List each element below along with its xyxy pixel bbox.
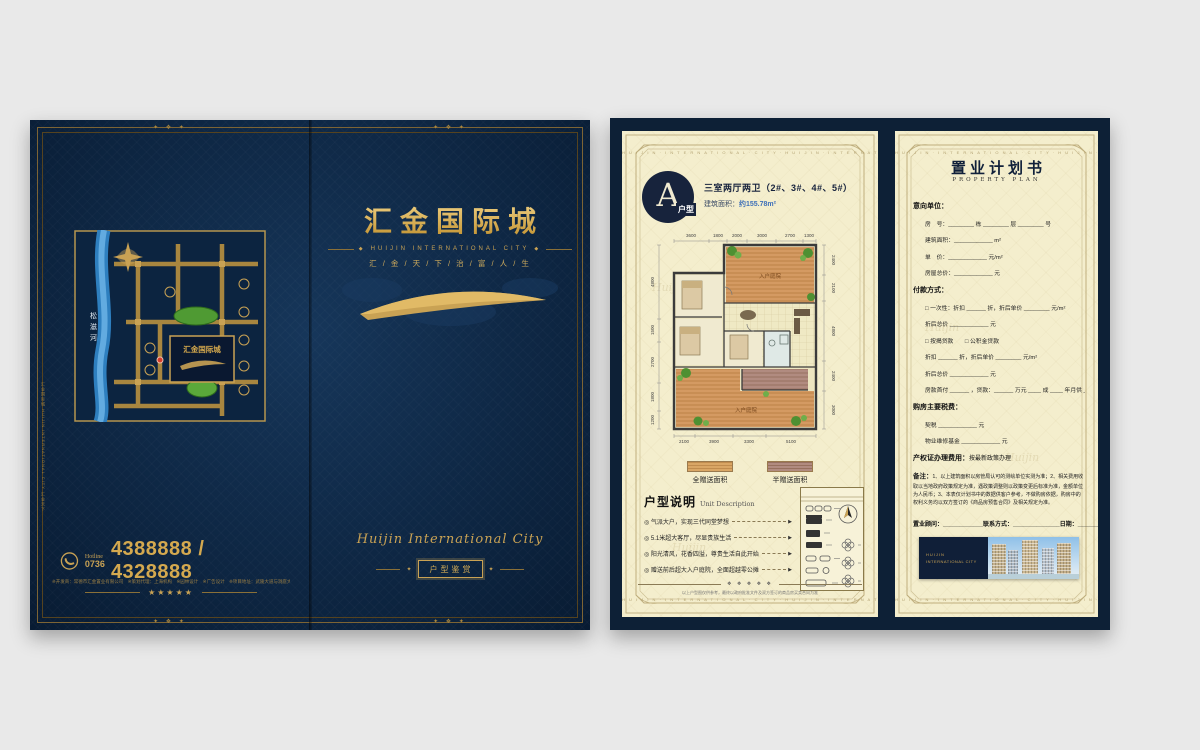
half-gift-swatch xyxy=(767,461,813,472)
border-letters: H U I J I N · I N T E R N A T I O N A L … xyxy=(622,150,878,155)
unit-description: 户型说明Unit Description ◎ 气派大户，实现三代同堂梦想 ▶ ◎… xyxy=(644,493,792,574)
legend-icons-solid xyxy=(806,515,822,548)
cover-spread: ✦ ❖ ✦ ✦ ❖ ✦ ✦ ❖ ✦ ✦ ❖ ✦ 松 滋 河 xyxy=(30,120,590,630)
form-line: 房屋总价：____________ 元 xyxy=(925,268,1085,277)
unit-description-title: 户型说明Unit Description xyxy=(644,493,792,510)
form-body: 意向单位： 房 号：________ 栋 ________ 层 ________… xyxy=(913,193,1085,593)
arrow-icon: ▶ xyxy=(788,535,792,541)
full-gift-swatch xyxy=(687,461,733,472)
desc-line: ◎ 赠送前后超大入户庭院，全面超越零公摊 ▶ xyxy=(644,565,792,574)
svg-text:2400: 2400 xyxy=(831,371,836,382)
ornament-icon: ✦ ❖ ✦ xyxy=(110,618,230,625)
unit-area: 建筑面积：约155.78m² xyxy=(704,199,776,209)
advisor-field: 置业顾问：____________ xyxy=(913,519,983,528)
arrow-icon: ▶ xyxy=(788,551,792,557)
svg-text:3900: 3900 xyxy=(709,439,720,444)
sparkle-icon: ✦ xyxy=(489,566,494,573)
hotline-numbers: 4388888 / 4328888 xyxy=(111,538,282,584)
border-letters: H U I J I N · I N T E R N A T I O N A L … xyxy=(622,597,878,602)
ornament-icon: ✦ ❖ ✦ xyxy=(390,618,510,625)
spine-text: 汇金国际城 HUIJIN INTERNATIONAL CITY 汇金天下 xyxy=(40,382,46,542)
section-label-cert: 产权证办理费用：按最新政策办理 xyxy=(913,453,1085,463)
gift-area-legend: 全赠送面积 半赠送面积 xyxy=(622,461,878,485)
desc-line: ◎ 5.1米超大客厅，尽显贵族生活 ▶ xyxy=(644,533,792,542)
svg-text:3300: 3300 xyxy=(744,439,755,444)
floorplan-disclaimer: 以上户型图仅供参考，最终以政府批准文件及双方签订的商品房买卖合同为准 xyxy=(638,590,862,596)
section-label-intent: 意向单位： xyxy=(913,201,1085,211)
unit-gallery-badge: ✦ 户型鉴赏 ✦ xyxy=(322,560,578,578)
svg-text:2100: 2100 xyxy=(831,283,836,294)
cert-value: 按最新政策办理 xyxy=(969,456,1011,462)
form-subtitle: PROPERTY PLAN xyxy=(895,177,1098,183)
border-letters: H U I J I N · I N T E R N A T I O N A L … xyxy=(895,150,1098,155)
brochure-mockup: { "icons": {"diamond": "◆", "arrow": "▶"… xyxy=(0,0,1200,750)
svg-text:5100: 5100 xyxy=(786,439,797,444)
arrow-icon: ▶ xyxy=(788,567,792,573)
courtyard-bottom-label: 入户庭院 xyxy=(735,406,758,414)
form-line: 契税 ____________ 元 xyxy=(925,420,1085,429)
section-label-taxes: 购房主要税费： xyxy=(913,402,1085,412)
floorplan-page: H U I J I N · I N T E R N A T I O N A L … xyxy=(622,131,878,617)
unit-rooms-title: 三室两厅两卫（2#、3#、4#、5#） xyxy=(704,181,869,194)
ornament-icon: ✦ ❖ ✦ xyxy=(110,124,230,131)
interior-spread: H U I J I N · I N T E R N A T I O N A L … xyxy=(610,118,1110,630)
stars-row: ★★★★★ xyxy=(52,588,290,597)
svg-text:1300: 1300 xyxy=(804,233,815,238)
park-area xyxy=(174,307,218,325)
star-icons: ★★★★★ xyxy=(148,588,194,597)
courtyard-top-label: 入户庭院 xyxy=(759,272,782,280)
form-line: 折后总价 ____________ 元 xyxy=(925,369,1085,378)
form-line: 折后总价 ____________ 元 xyxy=(925,319,1085,328)
svg-text:3000: 3000 xyxy=(757,233,768,238)
logo-line2: INTERNATIONAL CITY xyxy=(926,559,988,564)
hotline-area-code: 0736 xyxy=(85,560,105,569)
form-line: 房 号：________ 栋 ________ 层 ________ 号 xyxy=(925,219,1085,228)
project-label: 汇金国际城 xyxy=(183,344,221,354)
svg-text:2700: 2700 xyxy=(785,233,796,238)
desc-line: ◎ 气派大户，实现三代同堂梦想 ▶ xyxy=(644,517,792,526)
brand-subtitle: ◆ HUIJIN INTERNATIONAL CITY ◆ xyxy=(322,246,578,252)
floorplan-legend xyxy=(800,487,864,591)
svg-text:2700: 2700 xyxy=(650,356,655,367)
svg-text:2100: 2100 xyxy=(679,439,690,444)
water xyxy=(988,574,1079,579)
svg-text:4800: 4800 xyxy=(650,276,655,287)
form-line: □ 一次性：折扣 ______ 折，折后单价 ________ 元/m² xyxy=(925,303,1085,312)
form-line: 房款首付 ______ ，贷款：______ 万元 ____ 成 ____ 年月… xyxy=(925,385,1085,394)
form-line: 物业维修基金 ____________ 元 xyxy=(925,436,1085,445)
form-line: 单 价：____________ 元/m² xyxy=(925,252,1085,261)
svg-text:1200: 1200 xyxy=(650,414,655,425)
svg-text:4800: 4800 xyxy=(831,326,836,337)
form-line: 建筑面积：____________ m² xyxy=(925,235,1085,244)
property-plan-page: H U I J I N · I N T E R N A T I O N A L … xyxy=(895,131,1098,617)
svg-text:1800: 1800 xyxy=(650,391,655,402)
hotline: Hotline 0736 4388888 / 4328888 xyxy=(60,538,282,584)
diamond-icon: ◆ xyxy=(359,246,366,252)
brand-script-name: Huijin International City xyxy=(322,532,578,547)
ornament-icon: ✦ ❖ ✦ xyxy=(390,124,510,131)
sparkle-icon: ✦ xyxy=(406,566,411,573)
unit-type-label: 户型 xyxy=(676,203,696,216)
notes: 备注：1、以上建筑面积以房管局认可的测绘单位实测为准；2、相关费用收取以当地政府… xyxy=(913,472,1085,507)
svg-text:1800: 1800 xyxy=(713,233,724,238)
half-gift-deck xyxy=(742,369,808,390)
svg-text:3600: 3600 xyxy=(686,233,697,238)
full-gift-item: 全赠送面积 xyxy=(687,461,733,485)
border-letters: H U I J I N · I N T E R N A T I O N A L … xyxy=(895,597,1098,602)
world-map-graphic xyxy=(330,262,570,342)
divider: ❖ ❖ ❖ ❖ ❖ xyxy=(638,581,862,587)
brand-title: 汇金国际城 xyxy=(322,200,578,240)
project-block: 汇金国际城 xyxy=(170,336,234,382)
form-line: □ 按揭贷款 □ 公积金贷款 xyxy=(925,336,1085,345)
logo-line1: HUIJIN xyxy=(926,552,988,557)
contact-field: 联系方式：______________ xyxy=(983,519,1060,528)
section-label-payment: 付款方式： xyxy=(913,285,1085,295)
svg-text:2400: 2400 xyxy=(831,255,836,266)
date-field: 日期：________ xyxy=(1060,519,1098,528)
diamond-icon: ◆ xyxy=(534,246,541,252)
unit-area-value: 约155.78m² xyxy=(739,201,776,208)
notes-label: 备注： xyxy=(913,473,933,480)
arrow-icon: ▶ xyxy=(788,519,792,525)
phone-icon xyxy=(60,551,79,571)
buildings-photo xyxy=(988,537,1079,579)
project-photo-strip: HUIJIN INTERNATIONAL CITY xyxy=(919,537,1079,579)
logo-block: HUIJIN INTERNATIONAL CITY xyxy=(919,537,988,579)
bathroom xyxy=(764,331,790,367)
fold-line xyxy=(309,120,312,630)
svg-text:1500: 1500 xyxy=(650,324,655,335)
location-map: 松 滋 河 汇金国际城 xyxy=(74,230,266,422)
svg-text:2000: 2000 xyxy=(732,233,743,238)
half-gift-item: 半赠送面积 xyxy=(767,461,813,485)
desc-line: ◎ 阳光清风，花香四溢，尊贵生活自此开始 ▶ xyxy=(644,549,792,558)
form-title: 置业计划书 xyxy=(895,157,1098,178)
form-footer: 置业顾问：____________ 联系方式：______________ 日期… xyxy=(913,519,1085,528)
poi-highlight xyxy=(157,357,163,363)
divider-glyphs: ❖ ❖ ❖ ❖ ❖ xyxy=(727,581,773,587)
floor-plan: 3600 1800 2000 3000 2700 1300 2100 3900 … xyxy=(646,231,854,447)
front-cover-title-block: 汇金国际城 ◆ HUIJIN INTERNATIONAL CITY ◆ 汇 / … xyxy=(322,200,578,269)
fine-print: ※开发商：常德市汇金置业有限公司 ※策划代理：上海机构 ※园林设计 ※广告设计 … xyxy=(52,579,290,585)
svg-text:3000: 3000 xyxy=(831,405,836,416)
form-line: 折扣 ______ 折，折后单价 ________ 元/m² xyxy=(925,352,1085,361)
